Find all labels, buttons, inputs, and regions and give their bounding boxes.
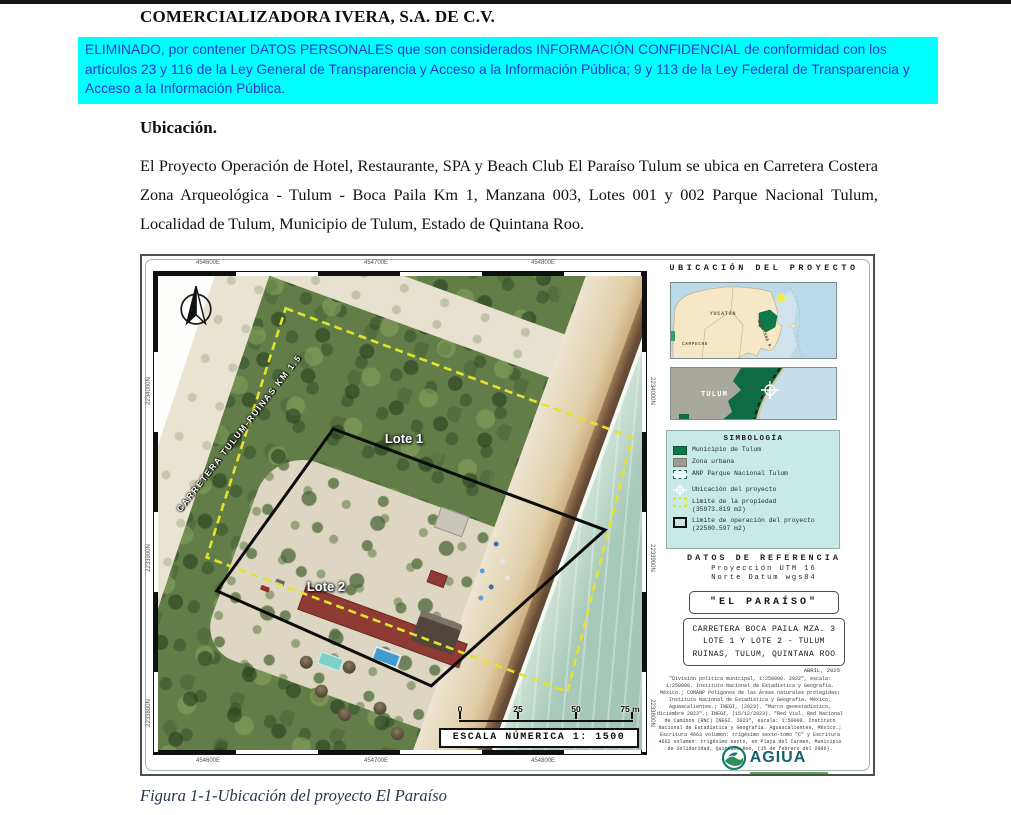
redaction-notice: ELIMINADO, por contener DATOS PERSONALES…: [78, 37, 938, 104]
anp-swatch: [673, 470, 687, 479]
address-line: CARRETERA BOCA PAILA MZA. 3: [684, 624, 844, 636]
address-line: RUINAS, TULUM, QUINTANA ROO: [684, 649, 844, 661]
state-label-campeche: CAMPECHE: [682, 342, 708, 347]
grid-label-left-3: 2233800N: [146, 685, 152, 741]
property-limit-polygon: [195, 308, 642, 692]
legend-item: Limite de la propiedad(35973.819 m2): [673, 498, 834, 514]
top-rule: [0, 0, 1011, 4]
document-title: COMERCIALIZADORA IVERA, S.A. DE C.V.: [140, 7, 495, 27]
grid-label-top-1: 454600E: [180, 260, 236, 266]
panel-title: UBICACIÓN DEL PROYECTO: [652, 263, 876, 273]
urban-zone-swatch: [673, 458, 687, 467]
grid-label-top-3: 454800E: [515, 260, 571, 266]
body-paragraph: El Proyecto Operación de Hotel, Restaura…: [140, 151, 878, 238]
crosshair-icon: [673, 484, 687, 493]
grid-label-top-2: 454700E: [348, 260, 404, 266]
legend-item: Limite de operación del proyecto(22580.5…: [673, 517, 834, 533]
lot2-label: Lote 2: [294, 579, 358, 594]
reference-datum: Norte Datum wgs84: [652, 574, 876, 582]
lot1-label: Lote 1: [372, 431, 436, 446]
project-address-box: CARRETERA BOCA PAILA MZA. 3 LOTE 1 Y LOT…: [683, 618, 845, 666]
reference-projection: Proyección UTM 16: [652, 565, 876, 573]
map-neatline: CARRETERA TULUM-RUINAS KM 1.5 Lote 1 Lot…: [154, 272, 646, 754]
operation-limit-polygon: [211, 410, 605, 723]
north-arrow-icon: [174, 284, 218, 330]
operation-limit-swatch: [673, 517, 687, 528]
aerial-photo: [158, 276, 642, 750]
aerial-map: CARRETERA TULUM-RUINAS KM 1.5 Lote 1 Lot…: [158, 276, 642, 750]
location-figure: 454600E 454700E 454800E 454600E 454700E …: [140, 254, 875, 776]
grid-label-left-2: 2233900N: [146, 530, 152, 586]
grid-label-bottom-3: 454800E: [515, 758, 571, 764]
agiua-logo: AGIUA: [652, 746, 876, 770]
inset-map-yucatan: YUCATÁN CAMPECHE QUINTANA R.: [670, 282, 837, 359]
legend-item: Zona urbana: [673, 458, 834, 467]
scale-tick-label: 75 m: [620, 704, 639, 714]
map-legend: SIMBOLOGÍA Municipio de Tulum Zona urban…: [666, 430, 840, 549]
agiua-logo-tagline: [750, 772, 828, 774]
agiua-logo-icon: [722, 746, 746, 770]
city-label-tulum: TULUM: [701, 391, 728, 399]
figure-date: ABRIL, 2025: [652, 667, 840, 674]
address-line: LOTE 1 Y LOTE 2 - TULUM: [684, 636, 844, 648]
numeric-scale-box: ESCALA NÚMERICA 1: 1500: [439, 728, 639, 748]
grid-label-bottom-2: 454700E: [348, 758, 404, 764]
grid-label-left-1: 2234000N: [146, 363, 152, 419]
figure-caption: Figura 1-1-Ubicación del proyecto El Par…: [140, 786, 447, 806]
document-page: COMERCIALIZADORA IVERA, S.A. DE C.V. ELI…: [0, 0, 1011, 815]
legend-item: Municipio de Tulum: [673, 446, 834, 455]
reference-data: DATOS DE REFERENCIA Proyección UTM 16 No…: [652, 553, 876, 582]
boundary-overlay: [158, 276, 642, 750]
municipio-swatch: [673, 446, 687, 455]
property-limit-swatch: [673, 498, 687, 507]
state-label-yucatan: YUCATÁN: [710, 310, 737, 317]
agiua-logo-text: AGIUA: [750, 749, 807, 767]
legend-item: ANP Parque Nacional Tulum: [673, 470, 834, 479]
grid-label-right-1: 2234000N: [649, 363, 655, 419]
project-name-box: "EL PARAÍSO": [689, 591, 839, 614]
inset-map-tulum: TULUM: [670, 367, 837, 420]
figure-sources: "División política municipal, 1:250000. …: [655, 676, 845, 753]
reference-title: DATOS DE REFERENCIA: [652, 553, 876, 563]
section-heading: Ubicación.: [140, 118, 217, 138]
grid-label-bottom-1: 454600E: [180, 758, 236, 764]
legend-title: SIMBOLOGÍA: [673, 435, 834, 443]
legend-item: Ubicación del proyecto: [673, 484, 834, 494]
scale-bar: 0 25 50 75 m: [458, 704, 636, 726]
